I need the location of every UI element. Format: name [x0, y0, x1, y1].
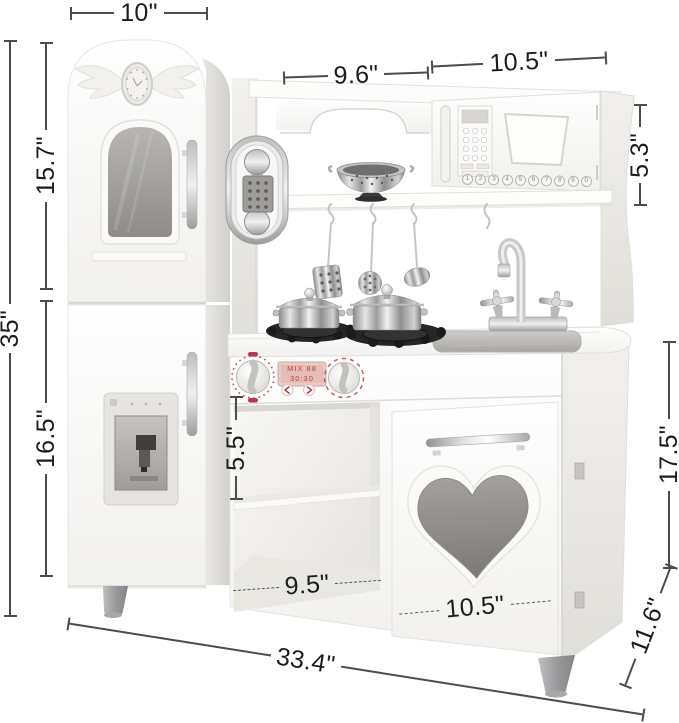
microwave-digit: 2 [475, 174, 486, 185]
dim-label: 10.5" [439, 591, 512, 622]
dim-label: 17.5" [657, 419, 679, 490]
microwave-digit-row: 1 2 3 4 5 6 7 8 9 0 [462, 174, 596, 188]
dim-fridge-top-width: 10" [70, 0, 208, 28]
hanging-utensils [312, 204, 489, 299]
dim-line [660, 567, 672, 594]
dim-line [164, 12, 207, 14]
dim-hutch-left-width: 9.6" [283, 57, 430, 92]
wall-shelf [253, 190, 612, 212]
toy-phone [226, 136, 288, 244]
dim-hutch-height: 5.3" [625, 104, 655, 206]
dim-right-cabinet-height: 17.5" [654, 341, 679, 569]
dim-line [72, 12, 115, 14]
skimmer [359, 223, 382, 295]
dim-label: 10.5" [483, 48, 555, 77]
dim-tick [206, 7, 208, 20]
fridge-ledge [92, 252, 186, 261]
hinge-icon [575, 463, 584, 479]
dim-line [235, 398, 237, 420]
dim-line [9, 42, 11, 304]
dim-line [45, 474, 47, 575]
fridge [68, 40, 230, 588]
dim-lower-section-height: 16.5" [31, 300, 61, 577]
stove-lcd-text: MIX 88 30:30 [280, 364, 324, 384]
ice-dispenser [104, 393, 178, 505]
leg-left [103, 586, 128, 618]
dim-label: 16.5" [34, 403, 59, 474]
dim-tick [230, 498, 243, 500]
dim-line [233, 586, 279, 590]
microwave-keypad [458, 106, 492, 177]
dim-shelf-opening-height: 5.5" [221, 396, 251, 500]
dim-line [384, 72, 427, 75]
dim-line [399, 610, 439, 615]
dim-line [554, 57, 605, 61]
dim-line [45, 302, 47, 403]
dim-line [668, 491, 670, 568]
spatula [312, 223, 343, 299]
ladle [402, 223, 432, 289]
dim-tick [40, 288, 53, 290]
lcd-line: 30:30 [280, 374, 324, 384]
microwave-window [505, 114, 568, 165]
dim-line [639, 183, 641, 204]
microwave-digit: 0 [581, 176, 592, 187]
dim-line [45, 44, 47, 131]
microwave-digit: 8 [554, 175, 565, 186]
dim-label: 35" [0, 304, 23, 354]
kitchen-dimensions-diagram: 1 2 3 4 5 6 7 8 9 0 MIX 88 30:30 10" 9.6… [0, 0, 679, 723]
dim-tick [4, 615, 17, 617]
microwave-digit: 6 [528, 175, 539, 186]
faucet-handle-left [479, 288, 517, 320]
hinge-icon [575, 592, 584, 608]
side-panel [562, 343, 629, 664]
faucet [479, 243, 575, 331]
dim-line [285, 75, 328, 78]
dim-line [510, 600, 550, 605]
dim-line [235, 476, 237, 498]
dim-line [335, 579, 381, 583]
dim-tick [634, 204, 647, 206]
pot-large [347, 285, 428, 331]
dim-tick [40, 575, 53, 577]
dim-label: 9.6" [327, 62, 385, 89]
dim-total-height: 35" [0, 40, 25, 617]
dim-line [9, 353, 11, 615]
microwave-digit: 7 [541, 175, 552, 186]
dim-line [625, 658, 637, 685]
dim-label: 5.3" [628, 127, 653, 184]
hutch-valance [276, 99, 432, 134]
dim-line [45, 202, 47, 289]
dim-label: 5.5" [224, 420, 249, 477]
microwave-digit: 3 [488, 174, 499, 185]
dim-label: 9.5" [278, 571, 336, 600]
dim-upper-section-height: 15.7" [31, 42, 61, 290]
dim-line [668, 343, 670, 420]
microwave-handle [441, 106, 450, 182]
faucet-handle-right [537, 289, 574, 321]
dim-label: 15.7" [34, 130, 59, 201]
microwave-digit: 5 [515, 175, 526, 186]
microwave-digit: 1 [462, 174, 473, 185]
microwave-digit: 9 [567, 176, 578, 187]
dim-line [639, 106, 641, 127]
microwave-digit: 4 [501, 175, 512, 186]
fridge-window [101, 120, 179, 244]
lcd-line: MIX 88 [280, 364, 324, 374]
dim-line [433, 63, 484, 67]
dim-label: 10" [114, 1, 164, 26]
sink [433, 331, 581, 352]
